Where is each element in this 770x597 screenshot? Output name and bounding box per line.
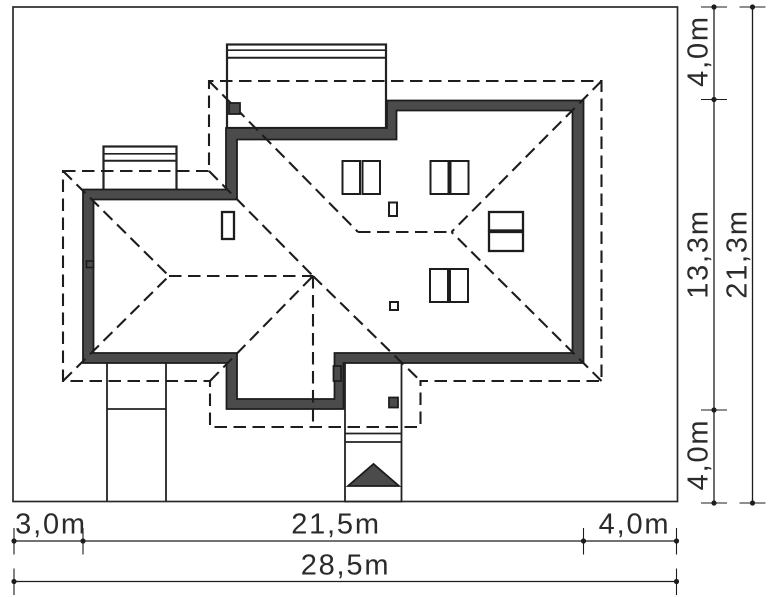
svg-text:3,0m: 3,0m [15,509,87,541]
svg-text:28,5m: 28,5m [301,550,391,582]
svg-text:4,0m: 4,0m [599,509,671,541]
svg-text:13,3m: 13,3m [683,209,715,299]
svg-text:4,0m: 4,0m [683,15,715,87]
svg-text:4,0m: 4,0m [683,419,715,491]
svg-text:21,3m: 21,3m [722,209,754,299]
svg-text:21,5m: 21,5m [291,509,381,541]
